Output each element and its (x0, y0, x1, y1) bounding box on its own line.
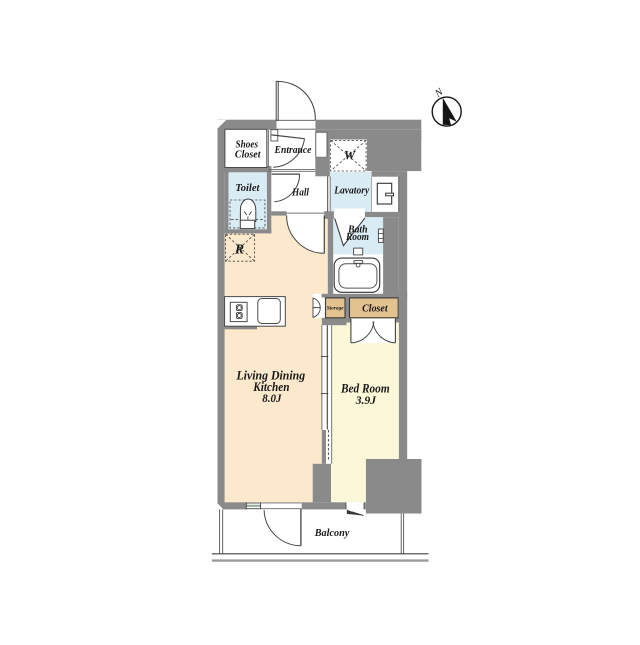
svg-text:Room: Room (345, 232, 369, 243)
svg-text:Toilet: Toilet (235, 183, 260, 194)
svg-text:Storage: Storage (327, 306, 345, 312)
svg-text:W: W (344, 148, 356, 162)
svg-text:Balcony: Balcony (314, 528, 350, 539)
svg-text:Closet: Closet (362, 304, 389, 315)
svg-text:Closet: Closet (235, 149, 262, 160)
svg-text:R: R (234, 241, 244, 256)
svg-text:Hall: Hall (291, 188, 309, 199)
svg-text:Lavatory: Lavatory (333, 186, 369, 197)
svg-text:8.0J: 8.0J (262, 391, 282, 405)
svg-text:3.9J: 3.9J (355, 393, 377, 407)
svg-text:Entrance: Entrance (274, 145, 312, 156)
